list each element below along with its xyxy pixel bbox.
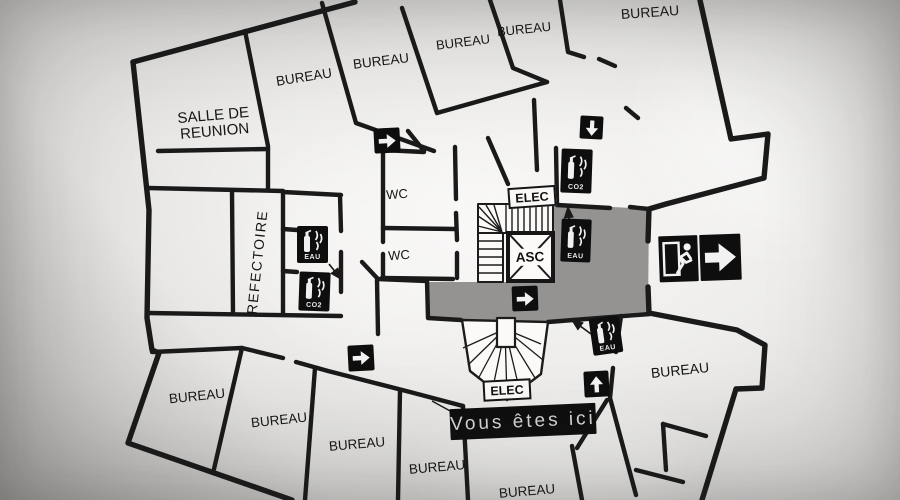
extinguisher-sign-eau: EAU	[297, 226, 328, 263]
room-label-meeting: SALLE DEREUNION	[177, 105, 251, 143]
up-arrow-icon	[585, 373, 607, 395]
you-are-here-label: Vous êtes ici	[450, 407, 596, 435]
right-arrow-icon	[514, 287, 537, 310]
extinguisher-sign-eau: EAU	[560, 218, 591, 262]
room-label-wc: WC	[388, 247, 411, 263]
direction-arrow-right-sign	[373, 127, 400, 153]
extinguisher-sign-co2: CO2	[298, 271, 330, 311]
direction-arrow-right-sign	[512, 286, 539, 312]
fire-extinguisher-icon	[301, 274, 329, 303]
elec-room-label: ELEC	[507, 185, 556, 209]
direction-arrow-right-sign	[347, 344, 374, 371]
you-are-here-banner: Vous êtes ici	[449, 403, 596, 440]
fire-extinguisher-icon	[591, 317, 620, 346]
fire-extinguisher-icon	[563, 221, 590, 253]
elec-room-label: ELEC	[482, 378, 531, 401]
fire-extinguisher-icon	[299, 228, 326, 254]
extinguisher-sign-eau: EAU	[589, 315, 624, 356]
exit-right-arrow-icon	[699, 234, 742, 281]
right-arrow-icon	[349, 346, 372, 369]
direction-arrow-down-sign	[579, 115, 603, 139]
extinguisher-sign-co2: CO2	[560, 148, 593, 193]
right-arrow-icon	[375, 129, 398, 152]
direction-arrow-up-sign	[583, 370, 609, 397]
room-label-wc: WC	[386, 186, 409, 202]
running-man-icon	[658, 235, 699, 282]
evacuation-plan-photo: SALLE DEREUNION BUREAU BUREAU BUREAU BUR…	[0, 0, 900, 500]
elevator-label: ASC	[511, 248, 548, 266]
down-arrow-icon	[581, 117, 602, 138]
fire-extinguisher-icon	[563, 151, 591, 184]
emergency-exit-sign	[658, 234, 742, 283]
